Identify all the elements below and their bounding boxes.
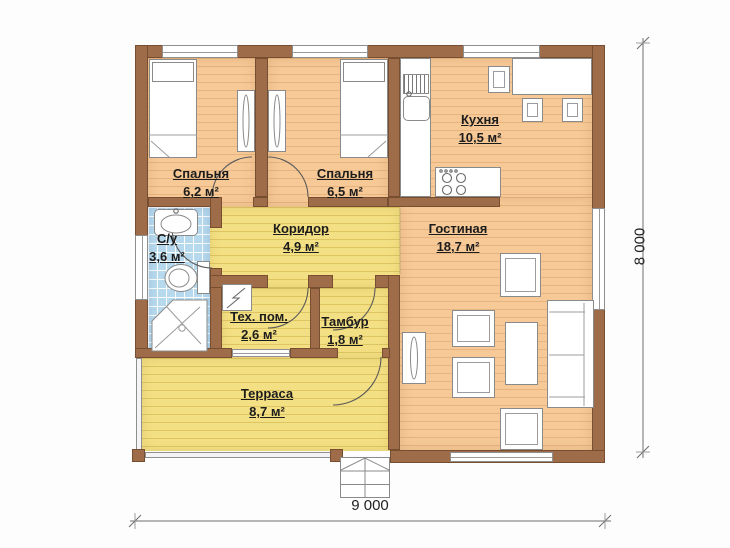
window-kitchen — [463, 45, 540, 58]
wall-bedrooms-bottom-a — [148, 197, 213, 207]
boiler — [222, 284, 252, 311]
tv-stand — [402, 332, 426, 384]
sofa — [547, 300, 594, 408]
wall-bedrooms-bottom-c — [308, 197, 388, 207]
railing-post-left — [132, 449, 145, 462]
chair-1 — [522, 98, 543, 122]
entrance-steps — [340, 457, 390, 498]
wall-terrace-top-c — [382, 348, 390, 358]
wall-terrace-top-a — [135, 348, 232, 358]
stove — [435, 167, 501, 197]
wall-bathroom-right-a — [210, 197, 222, 228]
wall-vestibule-living — [388, 275, 400, 450]
railing-bottom — [145, 452, 333, 458]
wall-bedroom2-kitchen — [388, 58, 400, 197]
wardrobe-2 — [268, 90, 286, 152]
washbasin — [154, 209, 198, 236]
dimension-guides-right — [636, 43, 650, 452]
floor-plan: Спальня 6,2 м² Спальня 6,5 м² Кухня 10,5… — [0, 0, 730, 548]
wall-left — [135, 45, 148, 358]
chair-2 — [562, 98, 583, 122]
wall-bedroom-divider — [255, 58, 268, 197]
dimension-ticks-bottom — [129, 515, 611, 527]
coffee-table — [505, 322, 538, 385]
terrace-floor — [142, 358, 390, 451]
kitchen-drainer — [403, 74, 429, 94]
dining-table — [512, 58, 592, 95]
dimension-guides-bottom — [135, 513, 605, 529]
armchair-top — [500, 253, 541, 297]
armchair-bottom — [500, 408, 543, 450]
dimension-height-label: 8 000 — [632, 215, 649, 279]
dimension-ticks-right — [637, 37, 649, 458]
window-living-right — [592, 208, 605, 310]
chair-3 — [488, 66, 510, 93]
wardrobe-1 — [237, 90, 255, 152]
pillow-2 — [343, 62, 385, 82]
window-bedroom-2 — [292, 45, 368, 58]
kitchen-sink — [403, 96, 430, 121]
railing-left — [136, 358, 142, 450]
armchair-left-1 — [452, 310, 495, 347]
armchair-left-2 — [452, 357, 495, 398]
dimension-width-label: 9 000 — [330, 497, 410, 514]
wall-terrace-top-b — [290, 348, 338, 358]
window-bedroom-1 — [162, 45, 238, 58]
toilet-tank — [197, 261, 210, 294]
pillow-1 — [152, 62, 194, 82]
window-tech-room — [232, 349, 290, 357]
window-bathroom — [135, 235, 148, 300]
wall-corridor-bottom-b — [308, 275, 333, 288]
window-living-bottom — [450, 452, 553, 462]
wall-kitchen-living — [388, 197, 500, 207]
wall-bedrooms-bottom-b — [253, 197, 268, 207]
